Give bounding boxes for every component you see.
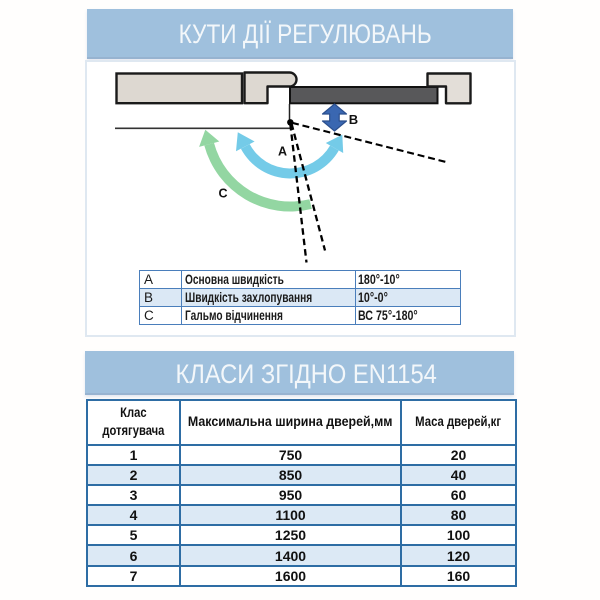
svg-text:C: C — [219, 186, 228, 200]
svg-text:B: B — [349, 112, 358, 127]
svg-text:A: A — [278, 144, 287, 158]
